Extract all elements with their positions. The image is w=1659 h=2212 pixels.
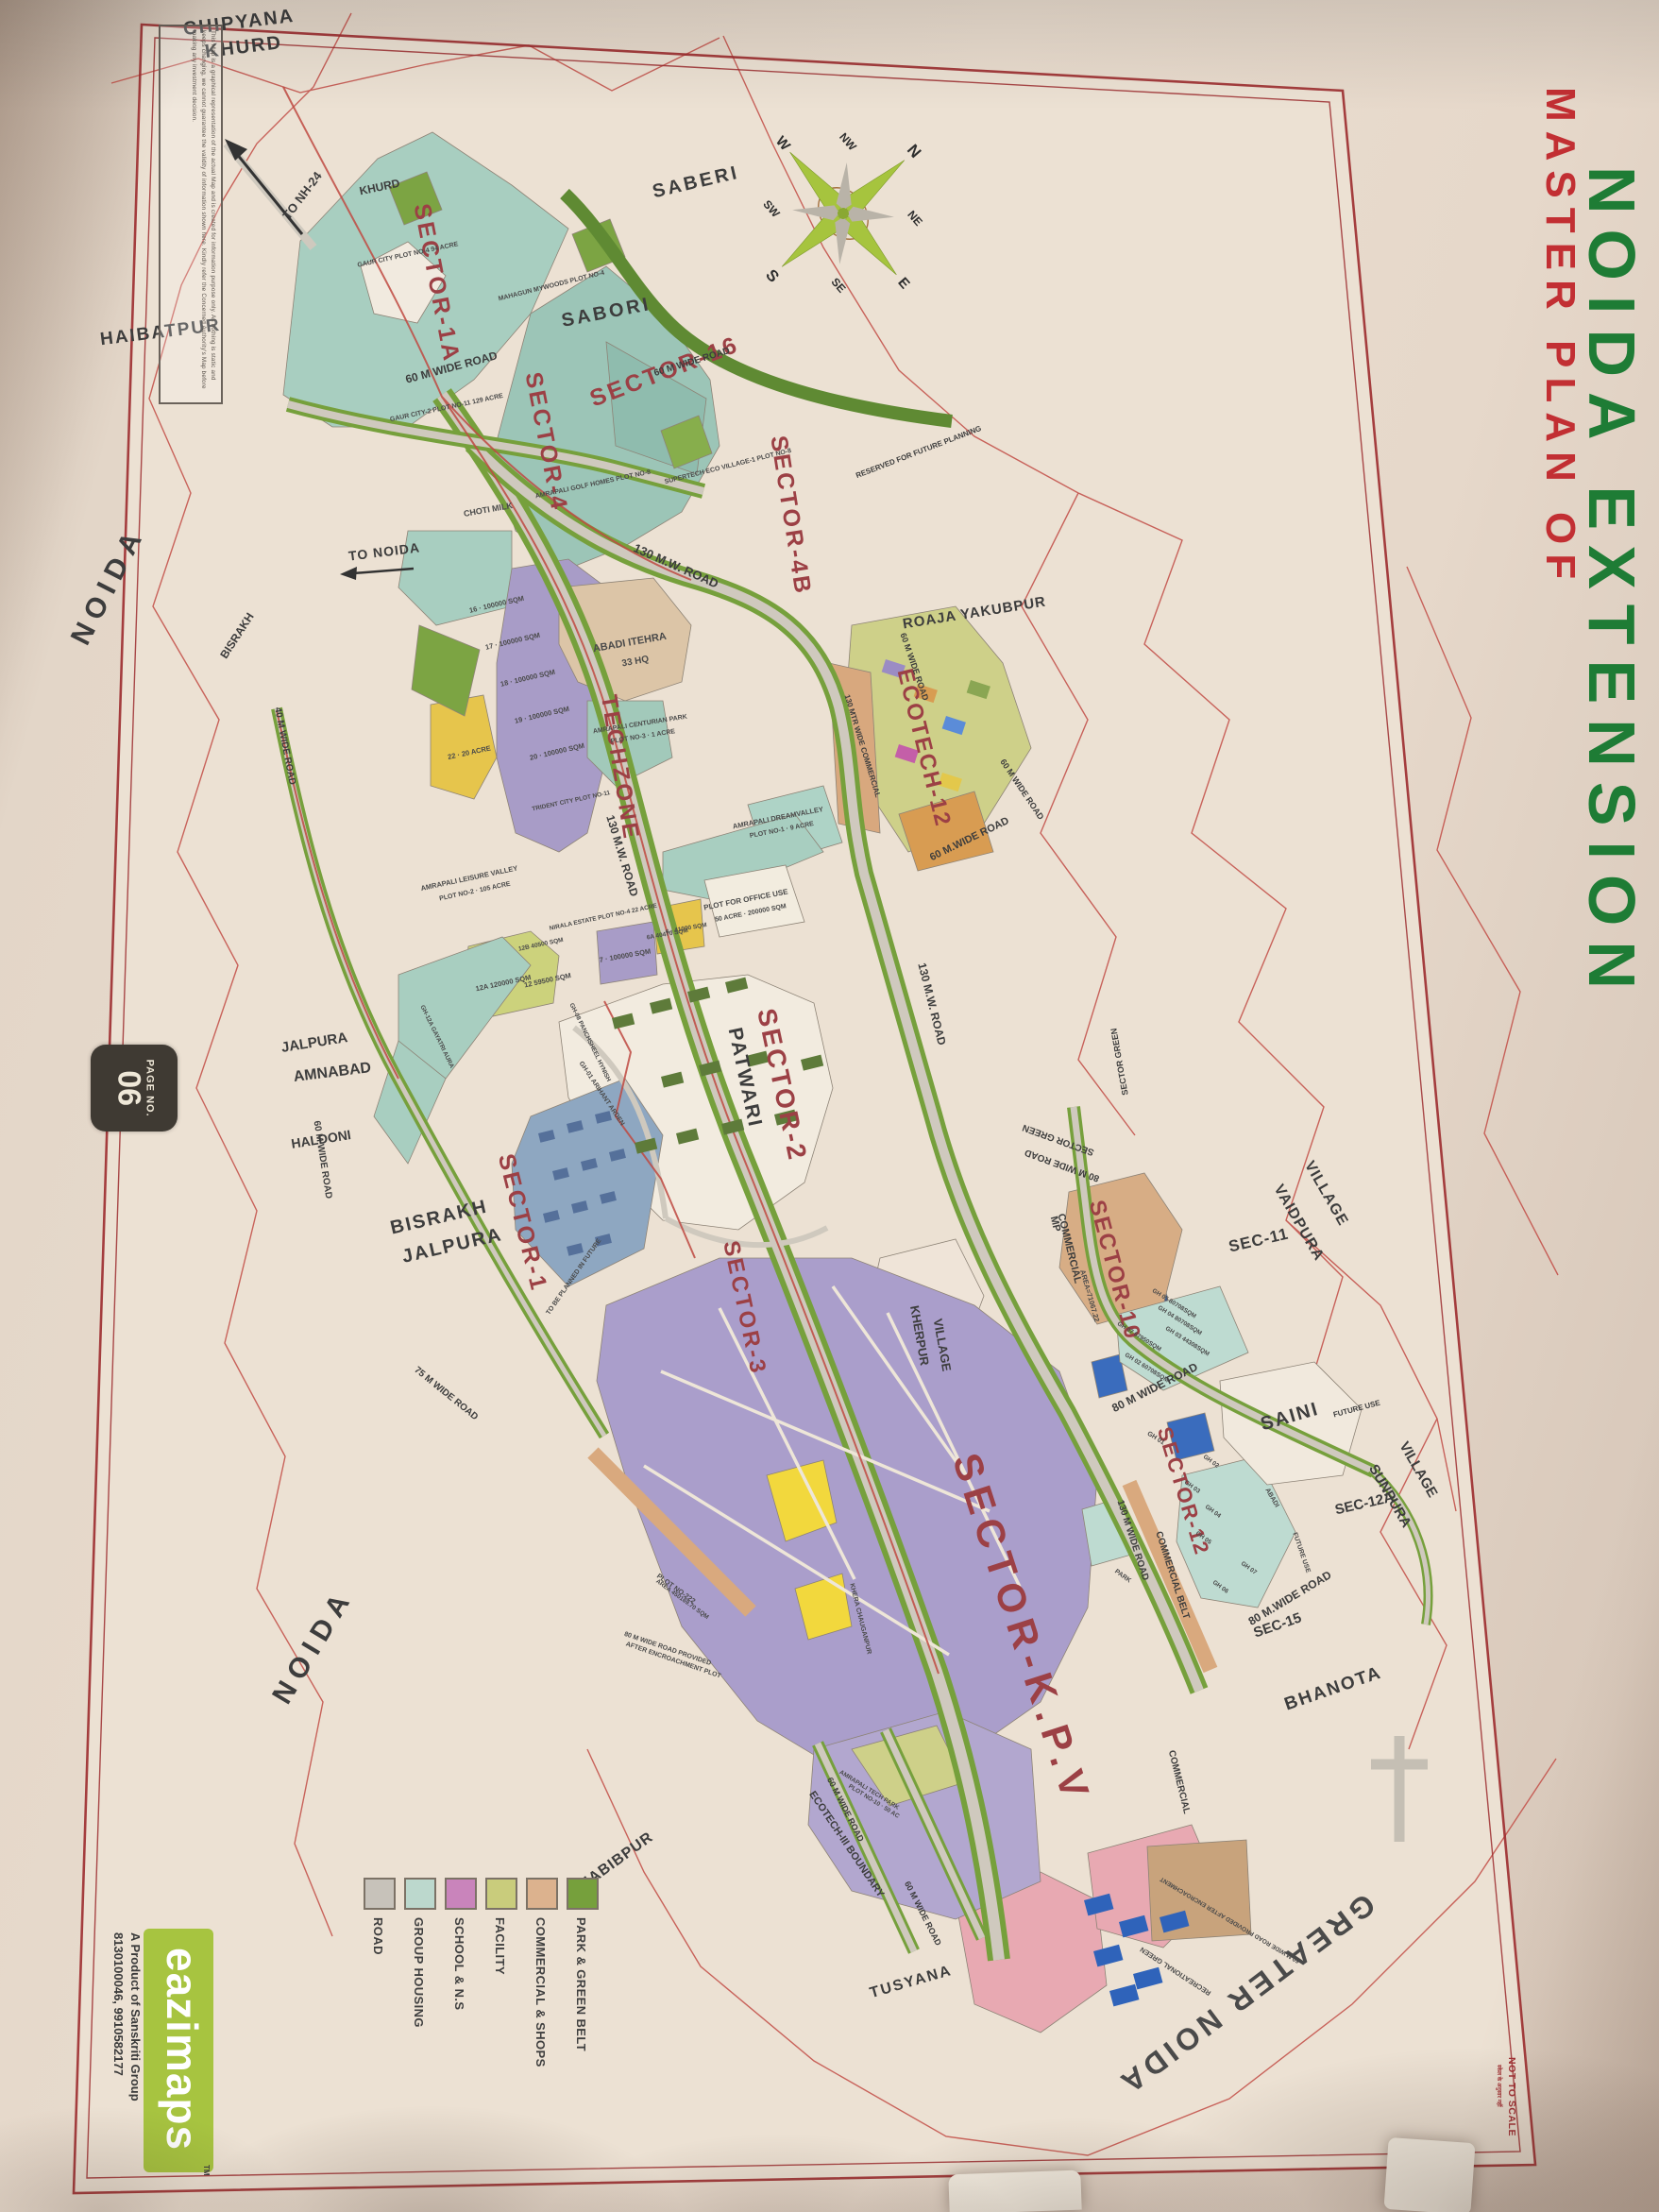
map-photo: CHIPYANAKHURDSABERISABORIHAIBATPURKHURDN…	[0, 0, 1659, 2212]
map-graphic	[0, 0, 1659, 2212]
title-line-2: NOIDA EXTENSION	[1579, 166, 1645, 1004]
legend-swatch	[445, 1878, 477, 1910]
brand-tagline: A Product of Sanskriti Group	[129, 1932, 142, 2101]
logo-text: eazimaps	[161, 1948, 204, 2151]
disclaimer-box: This Map is a graphical representation o…	[159, 25, 223, 404]
legend-label: FACILITY	[494, 1917, 506, 1975]
legend-label: ROAD	[372, 1917, 384, 1955]
legend-label: GROUP HOUSING	[413, 1917, 425, 2028]
legend-swatch	[567, 1878, 599, 1910]
photo-artifact	[948, 2170, 1081, 2212]
not-to-scale-text: NOT TO SCALE	[1507, 2057, 1517, 2136]
legend-swatch	[526, 1878, 558, 1910]
not-to-scale-hindi: स्केल के अनुसार नहीं	[1496, 2065, 1501, 2107]
legend-label: COMMERCIAL & SHOPS	[534, 1917, 547, 2067]
legend-label: SCHOOL & N.S	[453, 1917, 466, 2010]
legend-label: PARK & GREEN BELT	[575, 1917, 587, 2051]
page-number-badge: PAGE NO. 06	[91, 1045, 178, 1132]
legend-swatch	[364, 1878, 396, 1910]
brand-phones: 8130100046, 9910582177	[112, 1932, 125, 2076]
legend-swatch	[485, 1878, 517, 1910]
photo-artifact	[1383, 2137, 1475, 2212]
page-no-value: 06	[113, 1060, 144, 1117]
logo-tm: TM	[202, 2165, 210, 2176]
legend-swatch	[404, 1878, 436, 1910]
